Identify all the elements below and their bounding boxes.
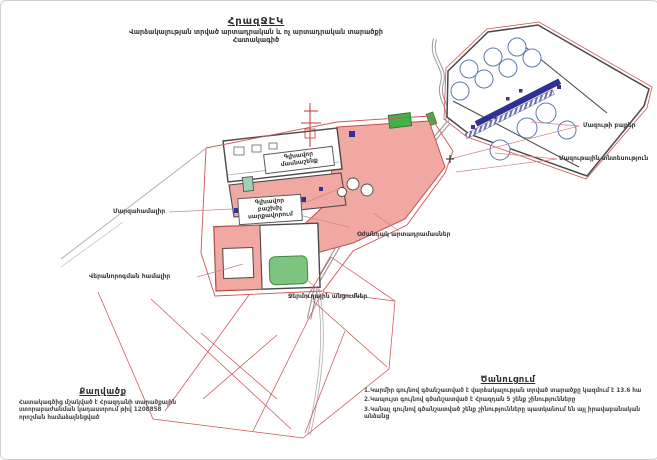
extract-block: Քաղվածք Հատակագծից մշակված է Հրազդանի տա… xyxy=(19,387,187,422)
green-plot xyxy=(388,113,411,129)
notice-item-1: 1.Կարմիր գույնով գծանշատված է վարձակալու… xyxy=(364,388,652,395)
extract-line1: Հատակագծից մշակված է Հրազդանի տարածքային xyxy=(19,400,187,407)
notice-item-3: 3.Կանաչ գույնով գծանշատված շենք շինությո… xyxy=(364,407,652,422)
notice-item-2: 2.Կապույտ գույնով գծանշատված է Հրազդան 5… xyxy=(364,397,652,404)
label-repair-complex: Վերանորոգման համալիր xyxy=(89,273,170,280)
title-block: ՀրազՋԷԿ Վարձակալության տրված արտադրական … xyxy=(106,9,406,44)
label-mazut-facility: Մազութային տնտեսություն xyxy=(559,155,648,162)
extract-line3: որոշման համաձայնեցված xyxy=(19,415,187,422)
switchgear-line3: սարքավորում xyxy=(242,211,298,222)
label-box-switchgear: Գլխավոր բաշխիչ սարքավորում xyxy=(237,194,303,225)
repair-complex-buildings xyxy=(214,223,320,291)
extract-line2: ստորաբաժանման կադաստրում թիվ 1208858 xyxy=(19,407,187,414)
notice-block: Ծանուցում 1.Կարմիր գույնով գծանշատված է … xyxy=(364,375,652,424)
small-green-building xyxy=(242,177,253,192)
label-thermal-lines: Ջերմուղային անցումներ xyxy=(288,293,367,300)
survey-cross-marker xyxy=(446,155,454,163)
extract-title: Քաղվածք xyxy=(19,387,187,397)
page-subtitle-line2: Հատակագիծ xyxy=(106,36,406,44)
page-title: ՀրազՋԷԿ xyxy=(214,16,299,28)
notice-title: Ծանուցում xyxy=(364,375,652,385)
label-mazut-tanks: Մազութի բաքեր xyxy=(583,122,635,129)
scanned-site-plan-page: ՀրազՋԷԿ Վարձակալության տրված արտադրական … xyxy=(0,0,657,460)
label-sports-complex: Մարզահամալիր xyxy=(113,208,165,215)
page-subtitle-line1: Վարձակալության տրված արտադրական և ոչ արտ… xyxy=(106,28,406,36)
label-aux-workshops: Օժանդակ արտադրամասներ xyxy=(357,231,450,238)
